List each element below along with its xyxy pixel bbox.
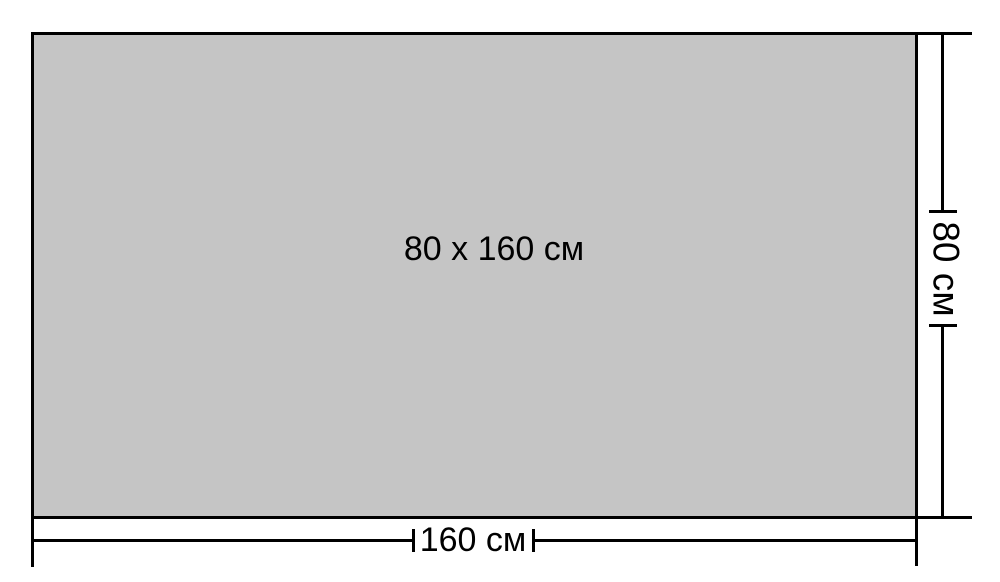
width-dimension-tick-left [412,529,415,552]
height-dimension-line-upper-segment [941,32,944,212]
height-dimension-label: 80 см [928,221,965,316]
extension-line-bottom-edge [918,516,972,519]
width-dimension-label: 160 см [420,523,527,557]
extension-line-left-edge [31,519,34,567]
height-dimension-tick-top [929,210,957,213]
width-dimension-line-left-segment [32,539,413,542]
extension-line-right-edge [915,519,918,566]
height-dimension-line-lower-segment [941,326,944,519]
extension-line-top-edge [918,32,972,35]
panel-size-label: 80 x 160 см [404,232,584,266]
panel-rectangle [31,32,918,519]
dimension-diagram: 80 x 160 см 80 см 160 см [0,0,1000,582]
width-dimension-line-right-segment [534,539,916,542]
